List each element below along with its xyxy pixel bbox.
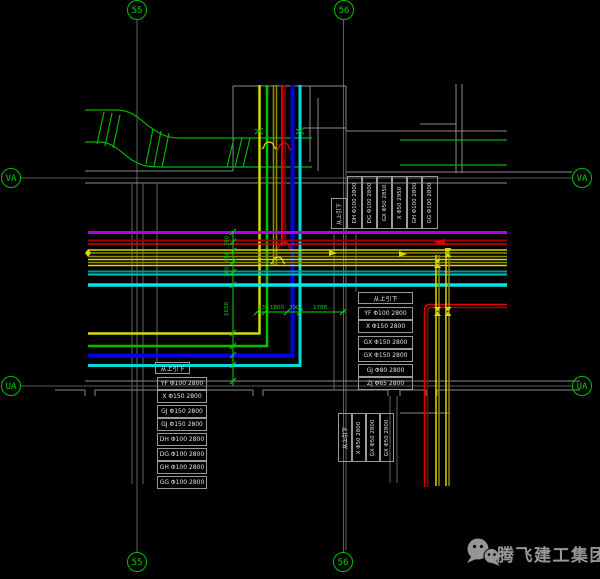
table-col: GG Φ100 2800 [422, 176, 438, 229]
duct-outline [85, 110, 507, 167]
dim-label: 1788 [313, 305, 327, 311]
wechat-icon [467, 539, 500, 567]
pipe-break-marks [255, 128, 304, 134]
wall-lines [55, 84, 580, 413]
table-col: GH Φ100 2800 [407, 176, 422, 229]
table-row: GG Φ100 2800 [157, 476, 207, 489]
table-header: 从上引下 [331, 198, 347, 229]
table-col: X Φ50 2950 [392, 176, 407, 229]
grid-bubble-56-top: 56 [334, 0, 354, 20]
vertical-pipes [260, 85, 301, 367]
table-row: DG Φ100 2800 [157, 448, 207, 461]
table-col: GX Φ50 2850 [377, 176, 392, 229]
table-col: DG Φ100 2800 [362, 176, 377, 229]
grid-bubble-va-right: VA [572, 168, 592, 188]
table-col: GX Φ50 2800 [380, 413, 394, 462]
table-row: GJ Φ150 2800 [157, 418, 207, 431]
dim-label: 390 [289, 305, 300, 311]
dim-label: 450 [224, 252, 230, 263]
table-row: GJ Φ80 2800 [358, 364, 413, 377]
table-header: 从上引下 [358, 292, 413, 304]
table-row: GH Φ100 2800 [157, 461, 207, 474]
dim-label: 1650 [224, 302, 230, 316]
table-row: DH Φ100 2800 [157, 433, 207, 446]
watermark-company-name: 腾飞建工集团 [497, 541, 600, 566]
flow-arrows [85, 239, 445, 257]
table-row: GJ Φ150 2800 [157, 405, 207, 418]
table-col: X Φ50 2800 [352, 413, 366, 462]
dim-label: 130 [258, 305, 269, 311]
grid-bubble-55-top: 55 [127, 0, 147, 20]
dim-label: 350 [224, 236, 230, 247]
table-row: ZJ Φ65 2800 [358, 377, 413, 390]
table-header: 从上引下 [155, 362, 190, 374]
drawing-canvas [0, 0, 600, 579]
table-col: DH Φ100 2800 [347, 176, 362, 229]
table-col: GX Φ50 2800 [366, 413, 380, 462]
grid-bubble-va-left: VA [1, 168, 21, 188]
table-row: X Φ150 2800 [157, 390, 207, 403]
cad-drawing-viewport: 55 56 VA VA UA UA 55 56 从上引下 DH Φ100 280… [0, 0, 600, 579]
grid-bubble-ua-right: UA [572, 376, 592, 396]
dim-label: 1800 [270, 305, 284, 311]
grid-bubble-55-bottom: 55 [127, 552, 147, 572]
table-row: X Φ150 2800 [358, 320, 413, 333]
table-row: GX Φ150 2800 [358, 336, 413, 349]
grid-bubble-ua-left: UA [1, 376, 21, 396]
dim-label: 700 [224, 267, 230, 278]
table-header: 从上引下 [338, 413, 352, 462]
grid-bubble-56-bottom: 56 [333, 552, 353, 572]
table-row: YF Φ100 2800 [358, 307, 413, 320]
table-row: GX Φ150 2800 [358, 349, 413, 362]
pipe-elbow-runs [88, 334, 301, 366]
table-row: YF Φ100 2800 [157, 377, 207, 390]
